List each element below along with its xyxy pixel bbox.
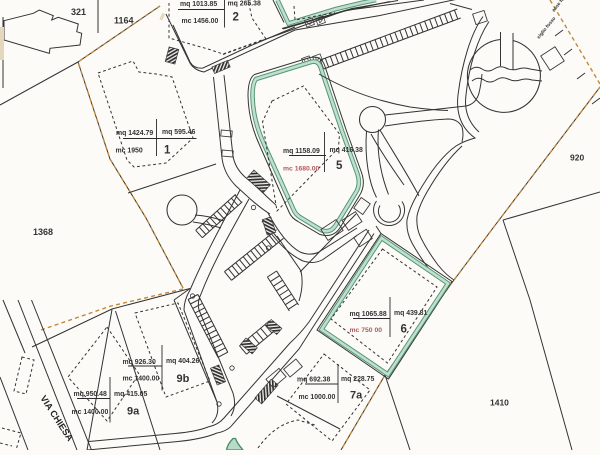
svg-text:mq 1065.88: mq 1065.88 — [350, 311, 387, 318]
svg-text:mc 1680.00: mc 1680.00 — [283, 166, 320, 173]
svg-text:6: 6 — [401, 324, 407, 336]
svg-text:mq 404.26: mq 404.26 — [166, 358, 199, 365]
svg-text:mq 416.38: mq 416.38 — [330, 147, 363, 154]
svg-text:321: 321 — [71, 7, 86, 17]
svg-text:mq 1158.09: mq 1158.09 — [283, 148, 320, 155]
svg-text:mc 1000.00: mc 1000.00 — [299, 394, 336, 401]
svg-text:mq 926.30: mq 926.30 — [123, 359, 156, 366]
svg-text:9b: 9b — [177, 373, 190, 385]
svg-text:mq 1424.79: mq 1424.79 — [116, 130, 153, 137]
svg-text:mq 265.38: mq 265.38 — [228, 1, 261, 8]
svg-text:1368: 1368 — [33, 227, 53, 237]
svg-text:mq 692.38: mq 692.38 — [297, 377, 330, 384]
svg-text:7a: 7a — [350, 390, 363, 402]
svg-text:2: 2 — [233, 12, 239, 24]
svg-text:mq 595.46: mq 595.46 — [162, 129, 195, 136]
svg-text:mq 439.81: mq 439.81 — [394, 310, 427, 317]
svg-text:mq 228.75: mq 228.75 — [341, 376, 374, 383]
svg-text:920: 920 — [570, 153, 584, 163]
svg-text:1410: 1410 — [490, 398, 509, 408]
svg-text:5: 5 — [336, 160, 343, 172]
svg-text:1: 1 — [164, 145, 171, 157]
svg-text:mc 1400.00: mc 1400.00 — [123, 376, 160, 383]
svg-text:mc 1456.00: mc 1456.00 — [182, 18, 219, 25]
svg-text:mc 1950: mc 1950 — [116, 148, 143, 155]
svg-text:mq 950.48: mq 950.48 — [74, 391, 107, 398]
svg-text:mc 750 00: mc 750 00 — [350, 327, 383, 334]
svg-text:mq 1013.85: mq 1013.85 — [180, 1, 217, 8]
svg-text:9a: 9a — [127, 406, 140, 418]
svg-text:mq 415.05: mq 415.05 — [114, 391, 147, 398]
svg-text:1164: 1164 — [114, 16, 134, 26]
